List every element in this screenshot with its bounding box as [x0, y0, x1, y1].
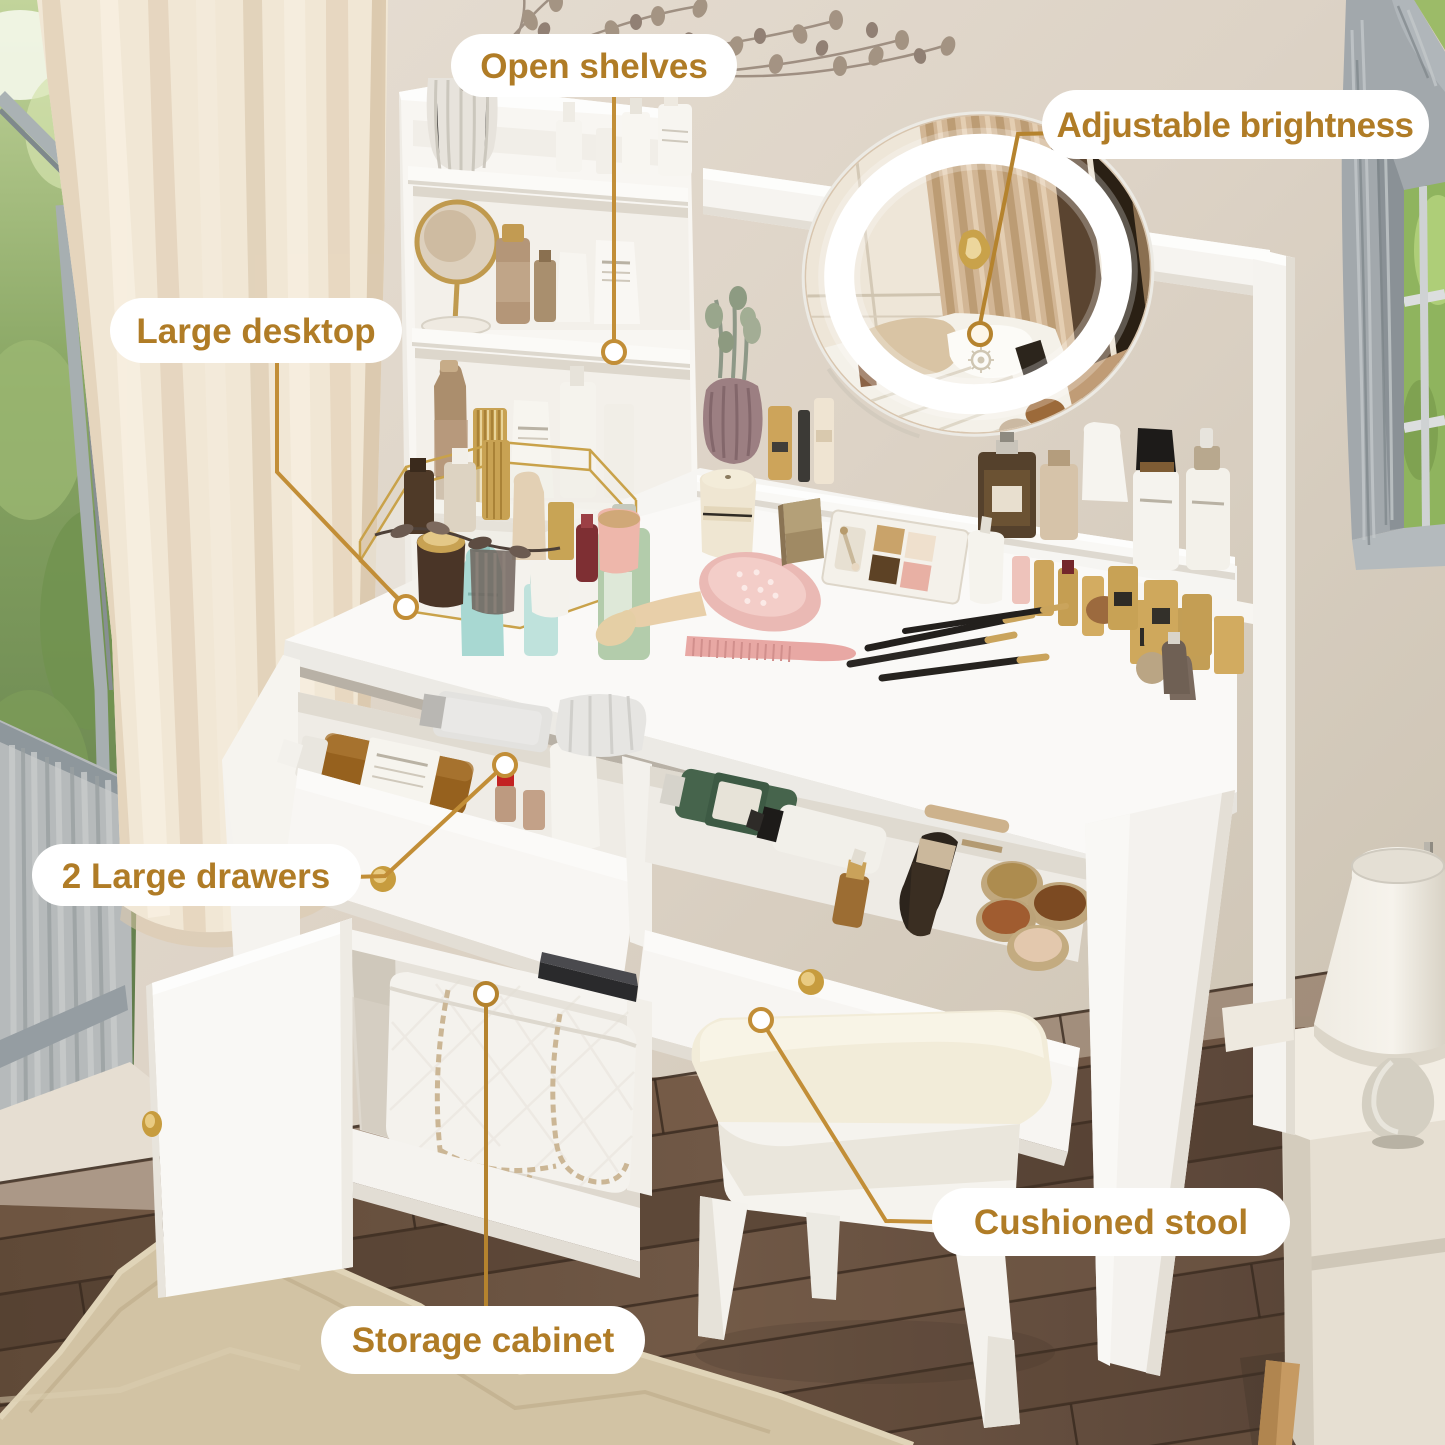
- svg-text:Cushioned stool: Cushioned stool: [974, 1203, 1248, 1242]
- svg-text:2 Large drawers: 2 Large drawers: [62, 857, 330, 896]
- svg-text:Adjustable brightness: Adjustable brightness: [1056, 106, 1413, 145]
- svg-text:Storage cabinet: Storage cabinet: [352, 1321, 615, 1360]
- svg-text:Large desktop: Large desktop: [136, 312, 375, 351]
- svg-text:Open shelves: Open shelves: [480, 47, 708, 86]
